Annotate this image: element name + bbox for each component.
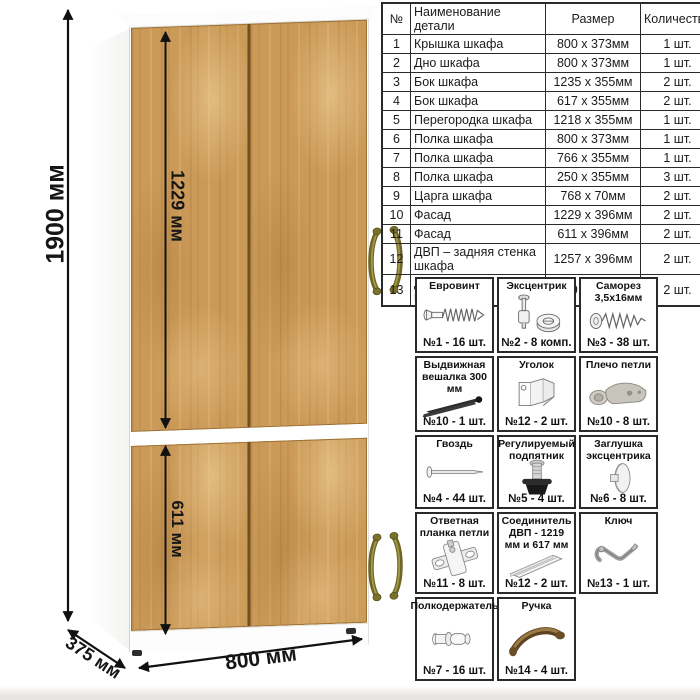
nail-icon [424,451,486,493]
hardware-cell: Ответная планка петли №11 - 8 шт. [415,512,494,594]
part-qty: 2 шт. [641,225,700,244]
hardware-cell: Эксцентрик №2 - 8 комп. [497,277,576,353]
hardware-count: №12 - 2 шт. [505,416,568,428]
part-qty: 3 шт. [641,168,700,187]
hardware-count: №1 - 16 шт. [423,337,486,349]
height-dimension-label: 1900 мм [42,164,71,264]
part-size: 1218 x 355мм [546,111,641,130]
part-qty: 2 шт. [641,73,700,92]
part-size: 766 x 355мм [546,149,641,168]
hardware-grid: Евровинт №1 - 16 шт. Эксцентрик [415,277,658,681]
part-name: Полка шкафа [411,130,546,149]
part-size: 800 x 373мм [546,35,641,54]
part-num: 9 [382,187,411,206]
hardware-count: №6 - 8 шт. [590,493,646,505]
col-header-size: Размер [546,3,641,35]
part-qty: 1 шт. [641,54,700,73]
pullout-hanger-icon [421,395,489,416]
wardrobe-illustration: 1900 мм 1229 мм 611 мм 800 мм 375 мм [0,0,420,700]
table-row: 2 Дно шкафа 800 x 373мм 1 шт. [382,54,700,73]
hardware-title: Уголок [519,360,554,372]
adjustable-foot-icon [517,463,557,494]
lower-door-dimension-label: 611 мм [167,500,187,557]
col-header-num: № [382,3,411,35]
hardware-title: Саморез 3,5х16мм [582,281,655,305]
part-name: Дно шкафа [411,54,546,73]
part-num: 13 [382,275,411,307]
part-qty: 1 шт. [641,111,700,130]
part-name: Царга шкафа [411,187,546,206]
part-name: Перегородка шкафа [411,111,546,130]
hardware-title: Ключ [605,516,633,528]
hardware-count: №13 - 1 шт. [587,578,650,590]
hardware-title: Эксцентрик [506,281,566,293]
hardware-count: №12 - 2 шт. [505,578,568,590]
part-num: 3 [382,73,411,92]
col-header-name: Наименование детали [411,3,546,35]
hardware-cell: Уголок №12 - 2 шт. [497,356,576,432]
table-row: 12 ДВП – задняя стенка шкафа 1257 x 396м… [382,244,700,275]
part-qty: 2 шт. [641,92,700,111]
part-name: Фасад [411,206,546,225]
part-num: 7 [382,149,411,168]
parts-table-header-row: № Наименование детали Размер Количество [382,3,700,35]
hardware-cell: Выдвижная вешалка 300 мм №10 - 1 шт. [415,356,494,432]
hardware-title: Полкодержатель [410,601,498,613]
part-size: 1235 x 355мм [546,73,641,92]
cam-cover-icon [602,463,636,494]
part-size: 611 x 396мм [546,225,641,244]
assembly-sheet: 1900 мм 1229 мм 611 мм 800 мм 375 мм № Н… [0,0,700,700]
table-row: 6 Полка шкафа 800 x 373мм 1 шт. [382,130,700,149]
self-tapping-screw-icon [588,305,650,338]
hardware-cell: Ключ №13 - 1 шт. [579,512,658,594]
part-qty: 2 шт. [641,206,700,225]
hardware-cell: Ручка №14 - 4 шт. [497,597,576,681]
part-size: 768 x 70мм [546,187,641,206]
part-name: Полка шкафа [411,168,546,187]
part-num: 12 [382,244,411,275]
furniture-handle-icon [505,613,569,665]
part-name: Полка шкафа [411,149,546,168]
hardware-cell: Плечо петли №10 - 8 шт. [579,356,658,432]
part-name: Крышка шкафа [411,35,546,54]
hardware-title: Гвоздь [436,439,473,451]
hardware-title: Ответная планка петли [418,516,491,540]
part-qty: 2 шт. [641,244,700,275]
table-row: 5 Перегородка шкафа 1218 x 355мм 1 шт. [382,111,700,130]
hardware-cell: Полкодержатель №7 - 16 шт. [415,597,494,681]
hardware-count: №11 - 8 шт. [423,578,485,590]
part-name: Бок шкафа [411,92,546,111]
part-qty: 2 шт. [641,187,700,206]
part-name: Фасад [411,225,546,244]
hdf-connector-icon [507,551,567,578]
hardware-count: №7 - 16 шт. [423,665,486,677]
table-row: 9 Царга шкафа 768 x 70мм 2 шт. [382,187,700,206]
part-qty: 1 шт. [641,130,700,149]
part-name: Бок шкафа [411,73,546,92]
hardware-cell: Соединитель ДВП - 1219 мм и 617 мм №12 -… [497,512,576,594]
hinge-arm-icon [588,372,650,416]
part-num: 5 [382,111,411,130]
hardware-count: №3 - 38 шт. [587,337,650,349]
hardware-cell: Саморез 3,5х16мм №3 - 38 шт. [579,277,658,353]
dimension-arrows [0,0,420,700]
part-num: 6 [382,130,411,149]
table-row: 10 Фасад 1229 x 396мм 2 шт. [382,206,700,225]
hinge-mounting-plate-icon [428,540,482,579]
hardware-cell-empty [579,597,658,681]
confirmat-screw-icon [421,293,489,337]
hardware-count: №4 - 44 шт. [423,493,486,505]
table-row: 4 Бок шкафа 617 x 355мм 2 шт. [382,92,700,111]
hardware-title: Соединитель ДВП - 1219 мм и 617 мм [500,516,573,551]
hardware-title: Выдвижная вешалка 300 мм [418,360,491,395]
col-header-qty: Количество [641,3,700,35]
table-row: 7 Полка шкафа 766 x 355мм 1 шт. [382,149,700,168]
hardware-count: №2 - 8 комп. [501,337,571,349]
hardware-count: №10 - 1 шт. [423,416,486,428]
hex-key-icon [591,528,647,578]
hardware-cell: Заглушка эксцентрика №6 - 8 шт. [579,435,658,509]
hardware-cell: Евровинт №1 - 16 шт. [415,277,494,353]
eccentric-cam-icon [509,293,565,337]
part-size: 1257 x 396мм [546,244,641,275]
hardware-cell: Регулируемый подпятник №5 - 4 шт. [497,435,576,509]
hardware-title: Плечо петли [586,360,651,372]
part-num: 1 [382,35,411,54]
shelf-pin-icon [429,613,481,665]
hardware-count: №14 - 4 шт. [505,665,568,677]
hardware-title: Евровинт [429,281,480,293]
part-size: 617 x 355мм [546,92,641,111]
table-row: 3 Бок шкафа 1235 x 355мм 2 шт. [382,73,700,92]
hardware-cell: Гвоздь №4 - 44 шт. [415,435,494,509]
part-num: 10 [382,206,411,225]
part-size: 250 x 355мм [546,168,641,187]
table-row: 11 Фасад 611 x 396мм 2 шт. [382,225,700,244]
table-row: 8 Полка шкафа 250 x 355мм 3 шт. [382,168,700,187]
part-name: ДВП – задняя стенка шкафа [411,244,546,275]
corner-bracket-icon [512,372,562,416]
part-size: 1229 x 396мм [546,206,641,225]
parts-table: № Наименование детали Размер Количество … [381,2,700,307]
part-num: 2 [382,54,411,73]
part-num: 11 [382,225,411,244]
upper-door-dimension-label: 1229 мм [167,170,188,242]
part-qty: 1 шт. [641,149,700,168]
part-size: 800 x 373мм [546,54,641,73]
part-num: 4 [382,92,411,111]
part-qty: 1 шт. [641,35,700,54]
table-row: 1 Крышка шкафа 800 x 373мм 1 шт. [382,35,700,54]
hardware-title: Ручка [521,601,551,613]
part-size: 800 x 373мм [546,130,641,149]
part-num: 8 [382,168,411,187]
hardware-count: №5 - 4 шт. [508,493,564,505]
hardware-count: №10 - 8 шт. [587,416,650,428]
